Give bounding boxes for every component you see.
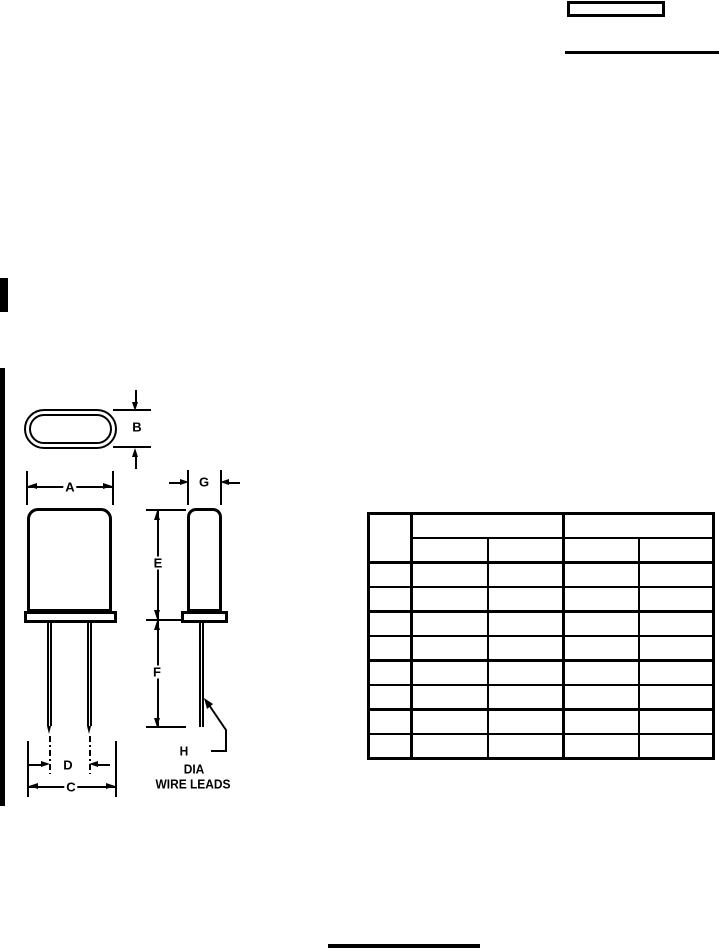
arrowhead-left [220,479,229,485]
table-cell [369,587,412,612]
table-subheader-cell [639,538,714,563]
arrowhead-left [28,483,37,489]
table-cell [564,661,639,686]
lead-right-tip [87,726,91,734]
table-cell [639,661,714,686]
lead-callout-h: H [180,745,189,758]
table-cell [639,563,714,588]
table-cell [369,661,412,686]
top-view-inner-outline [29,414,112,444]
table-cell [564,636,639,661]
table-cell [488,710,564,735]
table-cell [412,734,488,759]
extension-line [187,470,189,505]
table-cell [412,563,488,588]
table-row [369,636,714,661]
dimension-line [97,764,110,766]
lead-diameter-leader [190,690,236,754]
table-cell [639,636,714,661]
extension-line [112,471,114,505]
dim-label-b: B [130,421,143,434]
header-rule [565,51,719,54]
arrowhead-right [106,783,115,789]
crystal-base-side [181,611,228,623]
margin-bar-short [0,278,8,312]
dim-label-g: G [197,476,211,489]
crystal-base-front [24,611,117,623]
dim-label-c: C [64,781,77,794]
table-cell [412,710,488,735]
arrowhead-right [41,761,50,767]
table-header-row [369,514,714,539]
dimension-line [229,482,240,484]
table-cell [639,734,714,759]
table-cell [369,636,412,661]
table-cell [488,734,564,759]
table-group-cell [412,514,564,539]
table-cell [488,685,564,710]
table-cell [412,587,488,612]
table-row [369,661,714,686]
lead-callout-dia: DIA [184,763,205,776]
table-cell [488,587,564,612]
table-group-cell [564,514,714,539]
table-cell [412,685,488,710]
table-subheader-row [369,538,714,563]
dim-label-e: E [152,557,165,570]
table-cell [369,734,412,759]
lead-left-tip [47,726,51,734]
footer-rule [328,944,480,948]
extension-line [146,726,186,728]
table-cell [564,685,639,710]
table-cell [412,636,488,661]
arrowhead-right [180,479,189,485]
dimension-line [169,482,180,484]
spec-table-body [369,514,714,759]
table-row [369,685,714,710]
table-cell [412,661,488,686]
table-cell [412,612,488,637]
table-subheader-cell [488,538,564,563]
dim-label-d: D [61,759,74,772]
margin-bar-long [0,368,5,806]
arrowhead-right [103,483,112,489]
table-cell [564,710,639,735]
table-cell [564,563,639,588]
table-cell [639,587,714,612]
table-cell [564,587,639,612]
revision-box [567,1,665,17]
table-row [369,710,714,735]
table-cell [369,563,412,588]
extension-line [146,509,186,511]
extension-line [146,619,183,621]
table-row [369,563,714,588]
drawing-page: B A D C [0,0,719,950]
table-row [369,612,714,637]
table-subheader-cell [564,538,639,563]
extension-line [115,741,117,797]
table-cell [488,636,564,661]
table-cell [564,734,639,759]
table-cell [639,710,714,735]
dim-label-f: F [151,666,163,679]
table-row [369,587,714,612]
table-cell [369,612,412,637]
table-cell [488,612,564,637]
lead-left [47,623,52,726]
table-cell [564,612,639,637]
table-cell [369,710,412,735]
arrowhead-down [132,402,138,411]
table-cell [369,685,412,710]
crystal-body-side [187,508,222,612]
arrowhead-down [154,610,160,619]
crystal-body-front [27,508,112,612]
table-cell [639,612,714,637]
table-row [369,734,714,759]
lead-callout-wire-leads: WIRE LEADS [155,778,230,791]
dimensions-table [367,512,715,760]
arrowhead-left [29,783,38,789]
arrowhead-up [154,511,160,520]
arrowhead-up [154,621,160,630]
arrowhead-up [132,448,138,457]
table-cell [488,661,564,686]
lead-right [87,623,92,726]
dimension-line [135,456,137,469]
lead-centerline [89,736,91,774]
dim-label-a: A [63,481,76,494]
table-cell [488,563,564,588]
table-corner-cell [369,514,412,563]
extension-line [220,470,222,505]
table-cell [639,685,714,710]
lead-centerline [49,736,51,774]
table-subheader-cell [412,538,488,563]
